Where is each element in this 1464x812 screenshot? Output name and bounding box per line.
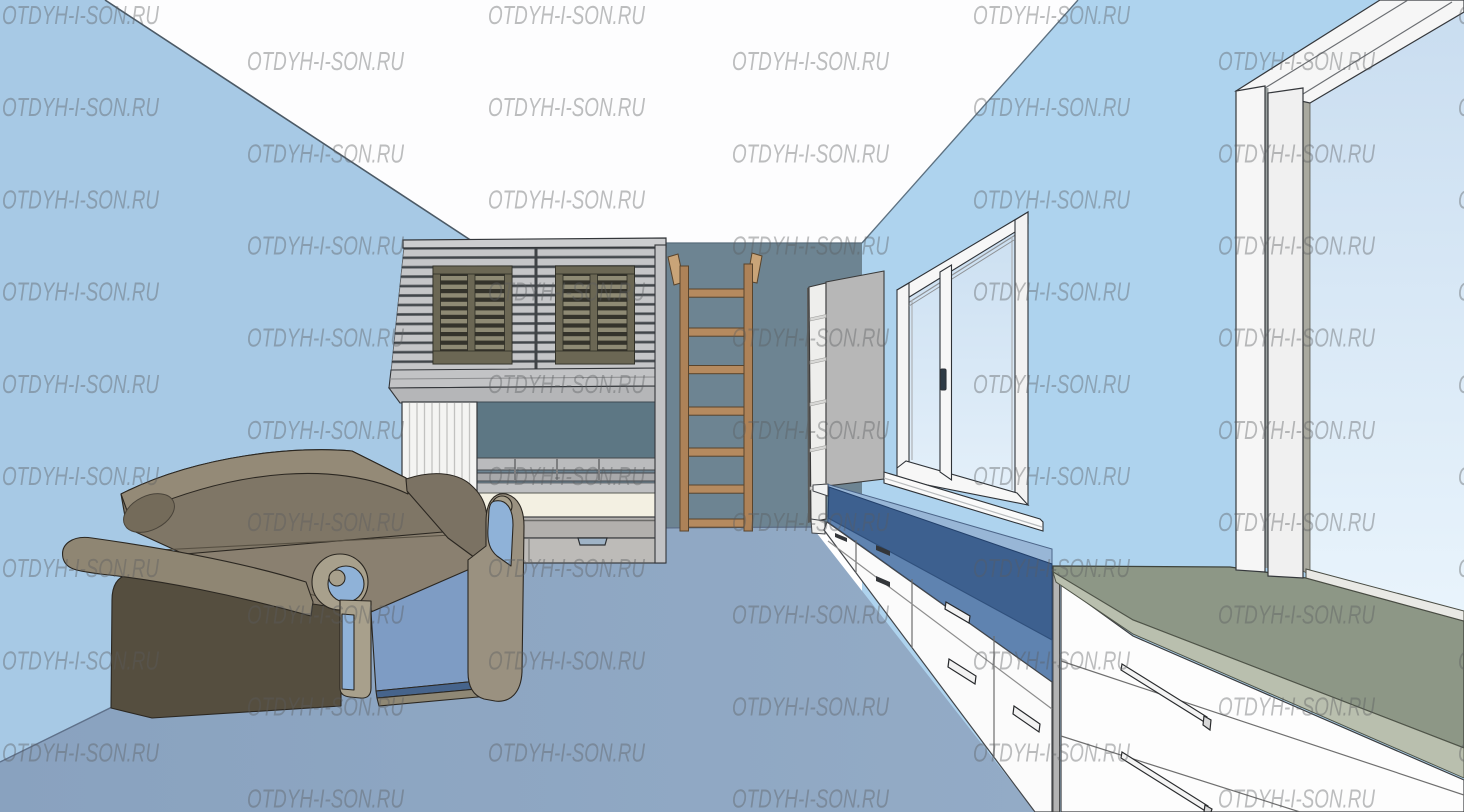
svg-text:OTDYH-I-SON.RU: OTDYH-I-SON.RU [1458,461,1464,491]
svg-text:OTDYH-I-SON.RU: OTDYH-I-SON.RU [973,738,1130,768]
svg-text:OTDYH-I-SON.RU: OTDYH-I-SON.RU [1458,277,1464,307]
svg-text:OTDYH-I-SON.RU: OTDYH-I-SON.RU [488,645,645,675]
svg-text:OTDYH-I-SON.RU: OTDYH-I-SON.RU [488,184,645,214]
svg-text:OTDYH-I-SON.RU: OTDYH-I-SON.RU [973,0,1130,30]
svg-text:OTDYH-I-SON.RU: OTDYH-I-SON.RU [732,784,889,812]
svg-text:OTDYH-I-SON.RU: OTDYH-I-SON.RU [732,599,889,629]
svg-text:OTDYH-I-SON.RU: OTDYH-I-SON.RU [732,138,889,168]
svg-text:OTDYH-I-SON.RU: OTDYH-I-SON.RU [2,92,159,122]
svg-text:OTDYH-I-SON.RU: OTDYH-I-SON.RU [488,461,645,491]
svg-text:OTDYH-I-SON.RU: OTDYH-I-SON.RU [1218,415,1375,445]
svg-text:OTDYH-I-SON.RU: OTDYH-I-SON.RU [1218,46,1375,76]
svg-text:OTDYH-I-SON.RU: OTDYH-I-SON.RU [2,738,159,768]
svg-text:OTDYH-I-SON.RU: OTDYH-I-SON.RU [1458,738,1464,768]
svg-text:OTDYH-I-SON.RU: OTDYH-I-SON.RU [1458,369,1464,399]
svg-text:OTDYH-I-SON.RU: OTDYH-I-SON.RU [1218,784,1375,812]
svg-text:OTDYH-I-SON.RU: OTDYH-I-SON.RU [247,415,404,445]
svg-text:OTDYH-I-SON.RU: OTDYH-I-SON.RU [732,415,889,445]
svg-text:OTDYH-I-SON.RU: OTDYH-I-SON.RU [973,184,1130,214]
svg-text:OTDYH-I-SON.RU: OTDYH-I-SON.RU [973,645,1130,675]
svg-text:OTDYH-I-SON.RU: OTDYH-I-SON.RU [247,507,404,537]
svg-text:OTDYH-I-SON.RU: OTDYH-I-SON.RU [1458,553,1464,583]
svg-text:OTDYH-I-SON.RU: OTDYH-I-SON.RU [973,553,1130,583]
svg-text:OTDYH-I-SON.RU: OTDYH-I-SON.RU [2,277,159,307]
svg-text:OTDYH-I-SON.RU: OTDYH-I-SON.RU [732,507,889,537]
svg-text:OTDYH-I-SON.RU: OTDYH-I-SON.RU [2,184,159,214]
svg-text:OTDYH-I-SON.RU: OTDYH-I-SON.RU [1458,645,1464,675]
svg-text:OTDYH-I-SON.RU: OTDYH-I-SON.RU [973,277,1130,307]
svg-text:OTDYH-I-SON.RU: OTDYH-I-SON.RU [1218,692,1375,722]
svg-text:OTDYH-I-SON.RU: OTDYH-I-SON.RU [973,369,1130,399]
svg-text:OTDYH-I-SON.RU: OTDYH-I-SON.RU [732,692,889,722]
svg-text:OTDYH-I-SON.RU: OTDYH-I-SON.RU [1218,231,1375,261]
svg-text:OTDYH-I-SON.RU: OTDYH-I-SON.RU [488,0,645,30]
svg-text:OTDYH-I-SON.RU: OTDYH-I-SON.RU [488,369,645,399]
svg-text:OTDYH-I-SON.RU: OTDYH-I-SON.RU [1218,507,1375,537]
svg-text:OTDYH-I-SON.RU: OTDYH-I-SON.RU [1218,138,1375,168]
svg-text:OTDYH-I-SON.RU: OTDYH-I-SON.RU [488,92,645,122]
svg-text:OTDYH-I-SON.RU: OTDYH-I-SON.RU [2,0,159,30]
svg-text:OTDYH-I-SON.RU: OTDYH-I-SON.RU [247,323,404,353]
svg-text:OTDYH-I-SON.RU: OTDYH-I-SON.RU [488,738,645,768]
svg-text:OTDYH-I-SON.RU: OTDYH-I-SON.RU [1458,184,1464,214]
svg-text:OTDYH-I-SON.RU: OTDYH-I-SON.RU [732,323,889,353]
svg-text:OTDYH-I-SON.RU: OTDYH-I-SON.RU [1218,599,1375,629]
svg-text:OTDYH-I-SON.RU: OTDYH-I-SON.RU [247,784,404,812]
svg-text:OTDYH-I-SON.RU: OTDYH-I-SON.RU [2,553,159,583]
svg-text:OTDYH-I-SON.RU: OTDYH-I-SON.RU [247,231,404,261]
svg-text:OTDYH-I-SON.RU: OTDYH-I-SON.RU [973,461,1130,491]
svg-text:OTDYH-I-SON.RU: OTDYH-I-SON.RU [1458,0,1464,30]
svg-text:OTDYH-I-SON.RU: OTDYH-I-SON.RU [247,46,404,76]
svg-text:OTDYH-I-SON.RU: OTDYH-I-SON.RU [488,277,645,307]
svg-text:OTDYH-I-SON.RU: OTDYH-I-SON.RU [973,92,1130,122]
svg-text:OTDYH-I-SON.RU: OTDYH-I-SON.RU [732,231,889,261]
svg-text:OTDYH-I-SON.RU: OTDYH-I-SON.RU [247,138,404,168]
svg-text:OTDYH-I-SON.RU: OTDYH-I-SON.RU [247,692,404,722]
svg-text:OTDYH-I-SON.RU: OTDYH-I-SON.RU [2,369,159,399]
svg-text:OTDYH-I-SON.RU: OTDYH-I-SON.RU [247,599,404,629]
svg-text:OTDYH-I-SON.RU: OTDYH-I-SON.RU [1218,323,1375,353]
svg-text:OTDYH-I-SON.RU: OTDYH-I-SON.RU [1458,92,1464,122]
svg-text:OTDYH-I-SON.RU: OTDYH-I-SON.RU [488,553,645,583]
svg-text:OTDYH-I-SON.RU: OTDYH-I-SON.RU [732,46,889,76]
svg-text:OTDYH-I-SON.RU: OTDYH-I-SON.RU [2,461,159,491]
svg-text:OTDYH-I-SON.RU: OTDYH-I-SON.RU [2,645,159,675]
